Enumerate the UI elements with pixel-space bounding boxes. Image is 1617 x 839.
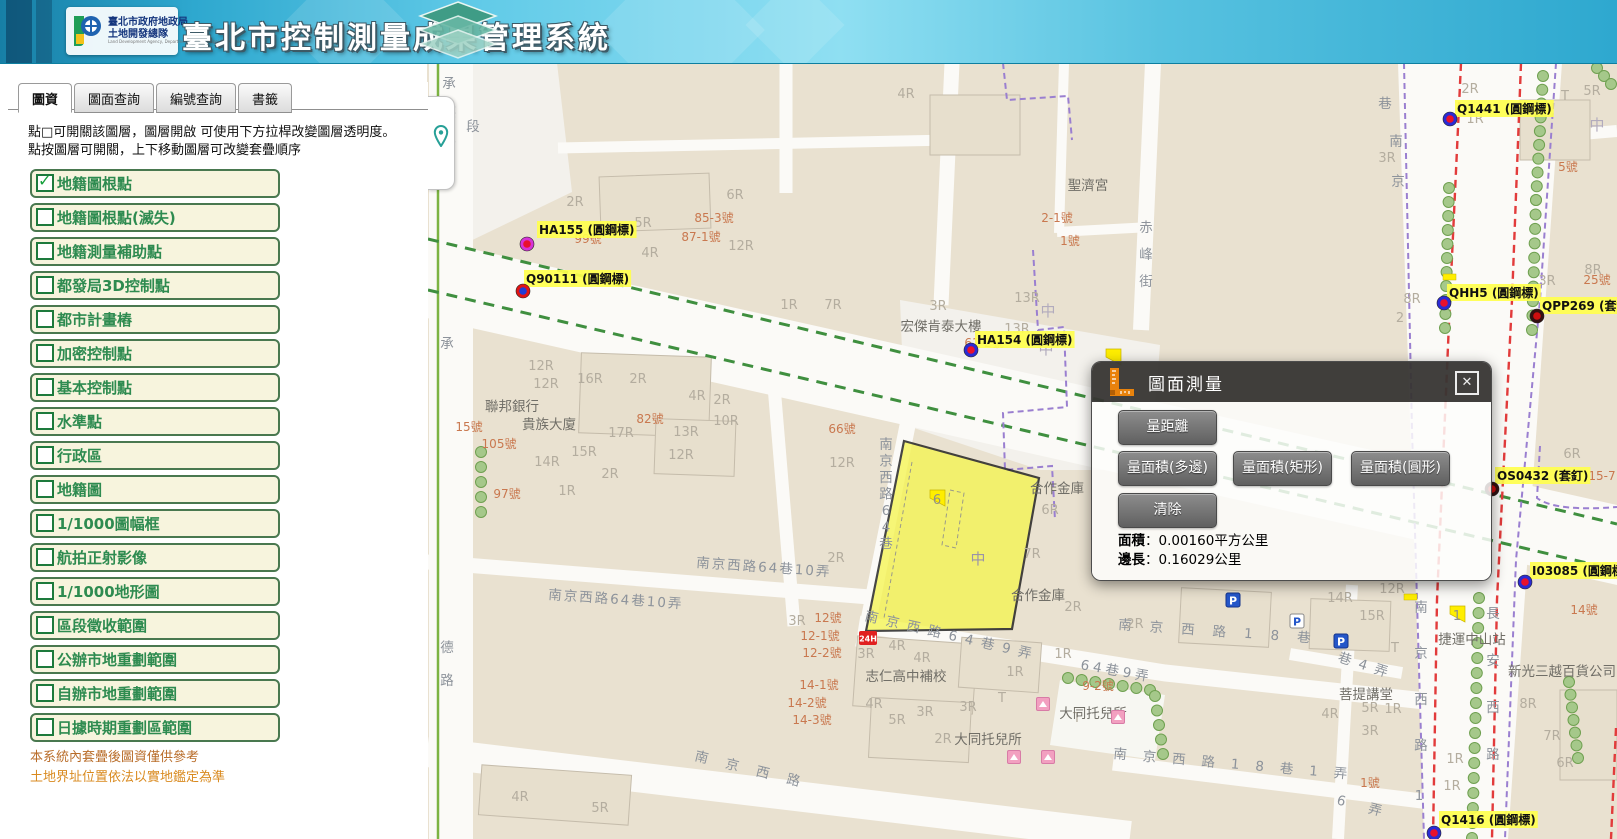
layer-checkbox[interactable] bbox=[36, 446, 54, 464]
tree-icon bbox=[1471, 683, 1482, 694]
layer-checkbox[interactable] bbox=[36, 480, 54, 498]
tree-icon bbox=[1474, 593, 1485, 604]
layer-checkbox[interactable] bbox=[36, 208, 54, 226]
location-pin-icon bbox=[433, 125, 449, 147]
layer-item-6[interactable]: 基本控制點 bbox=[30, 373, 280, 402]
tree-icon bbox=[476, 462, 487, 473]
building-label: T bbox=[1390, 641, 1399, 656]
sidebar-tabbar: 圖資圖面查詢編號查詢書籤 bbox=[8, 82, 428, 110]
layer-label: 都市計畫樁 bbox=[57, 309, 132, 330]
street-label: 承 bbox=[440, 336, 454, 352]
survey-point-dot bbox=[1533, 312, 1541, 320]
building-label: 2R bbox=[827, 551, 844, 566]
survey-point-label: HA155 (圓鋼標) bbox=[539, 222, 635, 237]
map-street bbox=[1059, 63, 1064, 233]
building-label: 4R bbox=[688, 389, 705, 404]
sidebar-notes: 本系統內套疊後圖資僅供參考 土地界址位置依法以實地鑑定為準 bbox=[30, 748, 428, 788]
building-label: 4R bbox=[511, 790, 528, 805]
layer-checkbox[interactable] bbox=[36, 412, 54, 430]
tree-icon bbox=[1154, 720, 1165, 731]
layer-label: 基本控制點 bbox=[57, 377, 132, 398]
layer-label: 行政區 bbox=[57, 445, 102, 466]
layer-checkbox[interactable] bbox=[36, 310, 54, 328]
street-label: 路 bbox=[1414, 738, 1428, 754]
tree-icon bbox=[1568, 715, 1579, 726]
building-label: 6R bbox=[1556, 756, 1573, 771]
tree-icon bbox=[1531, 195, 1542, 206]
survey-point-dot bbox=[967, 346, 975, 354]
building-label: 12R bbox=[533, 377, 559, 392]
place-label: 貴族大廈 bbox=[522, 416, 576, 433]
layer-checkbox[interactable] bbox=[36, 276, 54, 294]
house-number-label: 25號 bbox=[1583, 273, 1610, 287]
survey-point-label: Q90111 (圓鋼標) bbox=[526, 271, 629, 286]
tree-icon bbox=[1570, 727, 1581, 738]
tree-icon bbox=[1444, 183, 1455, 194]
house-number-label: 1號 bbox=[1360, 776, 1380, 790]
ruler-icon bbox=[1108, 368, 1134, 396]
building-label: 15R bbox=[1359, 609, 1385, 624]
header-decor-building bbox=[6, 0, 32, 63]
building-label: 6R bbox=[726, 188, 743, 203]
note-line: 土地界址位置依法以實地鑑定為準 bbox=[30, 768, 428, 788]
layer-item-0[interactable]: ✓地籍圖根點 bbox=[30, 169, 280, 198]
tab-1[interactable]: 圖面查詢 bbox=[74, 83, 154, 113]
building-label: 4R bbox=[1321, 707, 1338, 722]
street-label: 6 bbox=[882, 503, 891, 519]
tree-icon bbox=[1571, 740, 1582, 751]
street-label: 南 bbox=[1389, 134, 1403, 150]
area-circle-button[interactable]: 量面積(圓形) bbox=[1351, 451, 1450, 486]
tab-2[interactable]: 編號查詢 bbox=[156, 83, 236, 113]
parking-icon-letter: P bbox=[1293, 616, 1301, 629]
building-label: 6R bbox=[1563, 447, 1580, 462]
survey-point-dot bbox=[519, 287, 527, 295]
place-label: 合作金庫 bbox=[1030, 481, 1084, 497]
layer-checkbox[interactable] bbox=[36, 514, 54, 532]
place-label: 菩提講堂 bbox=[1339, 687, 1393, 703]
tree-icon bbox=[1470, 698, 1481, 709]
place-label: 捷運中山站 bbox=[1438, 632, 1506, 648]
building-label: 13R bbox=[673, 425, 699, 440]
building-label: 8R bbox=[1403, 292, 1420, 307]
street-label: 中 bbox=[970, 550, 985, 568]
survey-point-dot bbox=[1446, 115, 1454, 123]
house-number-label: 5號 bbox=[1558, 160, 1578, 174]
house-number-label: 1號 bbox=[1060, 234, 1080, 248]
tree-icon bbox=[1443, 197, 1454, 208]
measure-result-line: 面積：0.00160平方公里 bbox=[1118, 532, 1268, 551]
building-label: 2R bbox=[1064, 600, 1081, 615]
tree-icon bbox=[1470, 728, 1481, 739]
layer-label: 航拍正射影像 bbox=[57, 547, 147, 568]
map-flag-bar bbox=[1443, 274, 1456, 280]
measure-dialog-body: 面積：0.00160平方公里邊長：0.16029公里 量距離量面積(多邊)量面積… bbox=[1092, 402, 1491, 580]
tree-icon bbox=[1567, 702, 1578, 713]
building-label: 3R bbox=[857, 647, 874, 662]
header-decor-building bbox=[36, 0, 52, 63]
building-label: 7R bbox=[1543, 729, 1560, 744]
tab-0[interactable]: 圖資 bbox=[18, 83, 72, 113]
layer-checkbox[interactable] bbox=[36, 650, 54, 668]
building-label: 14R bbox=[534, 455, 560, 470]
building-label: 1R bbox=[1384, 702, 1401, 717]
building-label: 1R bbox=[1054, 647, 1071, 662]
street-label: 西 bbox=[1486, 700, 1500, 716]
building-label: 6R bbox=[1041, 503, 1058, 518]
street-label: 中 bbox=[1040, 302, 1055, 320]
clear-button[interactable]: 清除 bbox=[1118, 493, 1217, 528]
tree-icon bbox=[1442, 225, 1453, 236]
building-label: 3R bbox=[788, 614, 805, 629]
house-number-label: 15號 bbox=[455, 420, 482, 434]
tree-icon bbox=[1532, 167, 1543, 178]
tree-icon bbox=[1467, 833, 1478, 839]
building-label: 1R bbox=[1443, 779, 1460, 794]
building-label: 3R bbox=[1378, 151, 1395, 166]
building-label: 1R bbox=[1006, 665, 1023, 680]
tree-icon bbox=[476, 507, 487, 518]
tree-icon bbox=[1530, 209, 1541, 220]
street-label: 德 bbox=[440, 640, 454, 656]
street-label: 路 bbox=[440, 673, 454, 689]
building-label: 12R bbox=[1379, 582, 1405, 597]
tree-icon bbox=[1152, 705, 1163, 716]
building-label: 1R bbox=[558, 484, 575, 499]
layer-label: 地籍圖 bbox=[57, 479, 102, 500]
layer-item-10[interactable]: 1/1000圖幅框 bbox=[30, 509, 280, 538]
street-label: 路 bbox=[1486, 747, 1500, 763]
parking-icon[interactable]: P bbox=[1226, 593, 1240, 608]
building-label: 3R bbox=[916, 705, 933, 720]
building-label: 3R bbox=[959, 700, 976, 715]
house-number-label: 97號 bbox=[493, 487, 520, 501]
house-number-label: 66號 bbox=[828, 422, 855, 436]
street-label: 峰 bbox=[1139, 247, 1153, 263]
street-label: 長 bbox=[1486, 606, 1500, 622]
page-title: 臺北市控制測量成果管理系統 bbox=[182, 13, 611, 57]
building-label: 4R bbox=[888, 639, 905, 654]
building-label: T bbox=[997, 691, 1006, 706]
tree-icon bbox=[1534, 139, 1545, 150]
tree-icon bbox=[476, 492, 487, 503]
tree-icon bbox=[1131, 683, 1142, 694]
sidebar-panel: 圖資圖面查詢編號查詢書籤 點□可開關該圖層，圖層開啟 可使用下方拉桿改變圖層透明… bbox=[8, 82, 428, 839]
survey-point-label: OS0432 (套釘) bbox=[1497, 468, 1588, 483]
street-label: 路 bbox=[879, 487, 893, 503]
tree-icon bbox=[1442, 253, 1453, 264]
layer-item-4[interactable]: 都市計畫樁 bbox=[30, 305, 280, 334]
map-flag-number: 6 bbox=[933, 493, 941, 508]
tree-icon bbox=[1565, 689, 1576, 700]
survey-point-label: QHH5 (圓鋼標) bbox=[1449, 285, 1539, 300]
place-label: 合作金庫 bbox=[1011, 588, 1065, 604]
tree-icon bbox=[1606, 79, 1617, 90]
open-24h-badge: 24H bbox=[859, 631, 877, 645]
street-label: 赤 bbox=[1139, 220, 1153, 236]
building-label: 2R bbox=[1126, 617, 1143, 632]
place-label: 志仁高中補校 bbox=[866, 668, 947, 685]
layer-item-12[interactable]: 1/1000地形圖 bbox=[30, 577, 280, 606]
layer-label: 都發局3D控制點 bbox=[57, 275, 170, 296]
layer-checkbox[interactable] bbox=[36, 378, 54, 396]
street-label: 南 bbox=[879, 437, 893, 453]
note-line: 本系統內套疊後圖資僅供參考 bbox=[30, 748, 428, 768]
parking-icon[interactable]: P bbox=[1334, 634, 1348, 649]
layer-item-3[interactable]: 都發局3D控制點 bbox=[30, 271, 280, 300]
layer-checkbox[interactable]: ✓ bbox=[36, 174, 54, 192]
check-icon: ✓ bbox=[38, 171, 51, 190]
layer-label: 地籍測量補助點 bbox=[57, 241, 162, 262]
measure-results: 面積：0.00160平方公里邊長：0.16029公里 bbox=[1118, 532, 1268, 570]
sidebar-collapse-handle[interactable] bbox=[428, 96, 455, 190]
tree-icon bbox=[1538, 71, 1549, 82]
house-number-label: 87-1號 bbox=[681, 230, 720, 244]
survey-point-label: Q1416 (圓鋼標) bbox=[1441, 812, 1536, 827]
tree-icon bbox=[1468, 773, 1479, 784]
house-number-label: 14-1號 bbox=[799, 678, 838, 692]
map-flag-bar bbox=[1404, 594, 1417, 600]
building-label: 7R bbox=[1023, 547, 1040, 562]
measure-dialog: 圖面測量 ✕ 面積：0.00160平方公里邊長：0.16029公里 量距離量面積… bbox=[1091, 361, 1492, 581]
distance-button[interactable]: 量距離 bbox=[1118, 410, 1217, 445]
building-label: T bbox=[1560, 89, 1569, 104]
tree-icon bbox=[1469, 743, 1480, 754]
street-label: 巷 bbox=[1378, 96, 1392, 112]
layer-checkbox[interactable] bbox=[36, 684, 54, 702]
building-label: 5R bbox=[888, 713, 905, 728]
layer-checkbox[interactable] bbox=[36, 718, 54, 736]
tree-icon bbox=[476, 477, 487, 488]
building-label: 5R bbox=[591, 801, 608, 816]
building-label: 5R bbox=[634, 216, 651, 231]
building-label: 5R bbox=[1361, 701, 1378, 716]
nursery-icon bbox=[1037, 698, 1050, 711]
tree-icon bbox=[1530, 223, 1541, 234]
layer-checkbox[interactable] bbox=[36, 344, 54, 362]
layer-label: 公辦市地重劃範圍 bbox=[57, 649, 177, 670]
building-label: 2R bbox=[713, 393, 730, 408]
layer-item-14[interactable]: 公辦市地重劃範圍 bbox=[30, 645, 280, 674]
building-label: 1R bbox=[780, 298, 797, 313]
place-label: 聖濟宮 bbox=[1068, 178, 1109, 194]
tree-icon bbox=[1156, 734, 1167, 745]
tree-icon bbox=[1470, 713, 1481, 724]
building-label: 15R bbox=[571, 445, 597, 460]
layer-instructions: 點□可開關該圖層，圖層開啟 可使用下方拉桿改變圖層透明度。 點按圖層可開關，上下… bbox=[28, 124, 410, 161]
layer-label: 自辦市地重劃範圍 bbox=[57, 683, 177, 704]
street-label: 街 bbox=[1139, 274, 1153, 290]
tree-icon bbox=[1469, 758, 1480, 769]
open-24h-badge-text: 24H bbox=[859, 635, 877, 644]
agency-logo-icon bbox=[70, 14, 104, 48]
building-label: 14R bbox=[1327, 591, 1353, 606]
place-label: 大同托兒所 bbox=[954, 732, 1022, 748]
tree-icon bbox=[1442, 239, 1453, 250]
map-layers-graphic bbox=[418, 0, 498, 63]
layer-item-13[interactable]: 區段徵收範圍 bbox=[30, 611, 280, 640]
house-number-label: 14-2號 bbox=[787, 696, 826, 710]
tree-icon bbox=[1531, 181, 1542, 192]
tree-icon bbox=[1537, 84, 1548, 95]
layer-checkbox[interactable] bbox=[36, 242, 54, 260]
close-icon[interactable]: ✕ bbox=[1455, 371, 1479, 395]
building-label: 16R bbox=[577, 372, 603, 387]
parking-icon[interactable]: P bbox=[1290, 614, 1304, 629]
tree-icon bbox=[1468, 788, 1479, 799]
building-label: 2R bbox=[566, 195, 583, 210]
house-number-label: 14-3號 bbox=[792, 713, 831, 727]
tree-icon bbox=[1529, 252, 1540, 263]
building-label: 12R bbox=[728, 239, 754, 254]
tree-icon bbox=[1533, 153, 1544, 164]
layer-item-9[interactable]: 地籍圖 bbox=[30, 475, 280, 504]
layer-item-2[interactable]: 地籍測量補助點 bbox=[30, 237, 280, 266]
header-decor-diamond bbox=[746, 0, 845, 64]
street-label: 京 bbox=[1414, 646, 1428, 662]
house-number-label: 82號 bbox=[636, 412, 663, 426]
map-building bbox=[930, 95, 1020, 155]
street-label: 南 bbox=[1414, 600, 1428, 616]
tree-icon bbox=[1471, 668, 1482, 679]
nursery-icon bbox=[1112, 711, 1125, 724]
street-label: 承 bbox=[442, 76, 456, 92]
tree-icon bbox=[1529, 238, 1540, 249]
street-label: 4 bbox=[882, 520, 891, 536]
layer-label: 日據時期重劃區範圍 bbox=[57, 717, 192, 738]
survey-point-label: QPP269 (套釘) bbox=[1542, 298, 1617, 313]
street-label: 安 bbox=[1486, 653, 1500, 669]
map-street bbox=[1057, 227, 1152, 232]
building-label: 2R bbox=[601, 467, 618, 482]
street-label: 中 bbox=[1589, 116, 1604, 134]
tab-3[interactable]: 書籤 bbox=[238, 83, 292, 113]
tree-icon bbox=[1472, 653, 1483, 664]
house-number-label: 9-2號 bbox=[1082, 679, 1114, 693]
building-label: 13R bbox=[1014, 291, 1040, 306]
layer-label: 地籍圖根點(滅失) bbox=[57, 207, 176, 228]
app-header: 臺北市政府地政局 土地開發總隊 Land Development Agency,… bbox=[0, 0, 1617, 64]
building-label: 3R bbox=[1361, 724, 1378, 739]
building-label: 2R bbox=[1461, 82, 1478, 97]
street-label: 西 bbox=[1414, 692, 1428, 708]
measure-dialog-title: 圖面測量 bbox=[1148, 370, 1224, 395]
street-label: 1 bbox=[1415, 788, 1424, 804]
layer-item-1[interactable]: 地籍圖根點(滅失) bbox=[30, 203, 280, 232]
layer-label: 區段徵收範圍 bbox=[57, 615, 147, 636]
house-number-label: 15-7 bbox=[1588, 469, 1615, 483]
tree-icon bbox=[1117, 681, 1128, 692]
building-label: 3R bbox=[929, 299, 946, 314]
tree-icon bbox=[1150, 691, 1161, 702]
layer-list: ✓地籍圖根點地籍圖根點(滅失)地籍測量補助點都發局3D控制點都市計畫樁加密控制點… bbox=[30, 169, 428, 742]
agency-logo: 臺北市政府地政局 土地開發總隊 Land Development Agency,… bbox=[66, 7, 178, 55]
nursery-icon bbox=[1042, 751, 1055, 764]
nursery-icon bbox=[1008, 751, 1021, 764]
tree-icon bbox=[1534, 126, 1545, 137]
building-label: 8R bbox=[1519, 697, 1536, 712]
house-number-label: 12號 bbox=[814, 611, 841, 625]
house-number-label: 85-3號 bbox=[694, 211, 733, 225]
layer-item-5[interactable]: 加密控制點 bbox=[30, 339, 280, 368]
survey-point-label: Q1441 (圓鋼標) bbox=[1457, 101, 1552, 116]
layer-item-16[interactable]: 日據時期重劃區範圍 bbox=[30, 713, 280, 742]
building-label: 4R bbox=[865, 697, 882, 712]
building-label: 4R bbox=[897, 87, 914, 102]
tree-icon bbox=[1473, 608, 1484, 619]
building-label: 1R bbox=[1446, 752, 1463, 767]
measure-dialog-titlebar[interactable]: 圖面測量 ✕ bbox=[1092, 362, 1491, 402]
layer-checkbox[interactable] bbox=[36, 548, 54, 566]
street-label: 巷 bbox=[879, 536, 893, 552]
street-label: 段 bbox=[466, 119, 480, 135]
layer-checkbox[interactable] bbox=[36, 616, 54, 634]
building-label: 5R bbox=[1583, 84, 1600, 99]
layer-item-11[interactable]: 航拍正射影像 bbox=[30, 543, 280, 572]
layer-label: 水準點 bbox=[57, 411, 102, 432]
tree-icon bbox=[1443, 211, 1454, 222]
survey-point-label: I03085 (圓鋼標) bbox=[1532, 563, 1617, 578]
tree-icon bbox=[1063, 673, 1074, 684]
place-label: 聯邦銀行 bbox=[485, 399, 539, 415]
layer-label: 1/1000圖幅框 bbox=[57, 513, 160, 534]
layer-item-8[interactable]: 行政區 bbox=[30, 441, 280, 470]
house-number-label: 12-1號 bbox=[800, 629, 839, 643]
area-rect-button[interactable]: 量面積(矩形) bbox=[1233, 451, 1332, 486]
place-label: 宏傑肯泰大樓 bbox=[901, 319, 982, 335]
layer-item-15[interactable]: 自辦市地重劃範圍 bbox=[30, 679, 280, 708]
street-label: 京 bbox=[879, 454, 893, 470]
survey-point-dot bbox=[523, 240, 531, 248]
house-number-label: 2-1號 bbox=[1041, 211, 1073, 225]
layer-label: 地籍圖根點 bbox=[57, 173, 132, 194]
building-label: 2 bbox=[1396, 311, 1404, 326]
layer-label: 1/1000地形圖 bbox=[57, 581, 160, 602]
layer-item-7[interactable]: 水準點 bbox=[30, 407, 280, 436]
area-polygon-button[interactable]: 量面積(多邊) bbox=[1118, 451, 1217, 486]
app-window: 承德路段承德路南京西路64巷南京西路64巷10弄南京西路64巷10弄南京西路64… bbox=[0, 0, 1617, 839]
house-number-label: 14號 bbox=[1570, 603, 1597, 617]
survey-point-dot bbox=[1440, 299, 1448, 307]
header-decor-diamond bbox=[595, 0, 765, 64]
house-number-label: 105號 bbox=[482, 437, 517, 451]
building-label: 10R bbox=[713, 414, 739, 429]
street-label: 京 bbox=[1391, 174, 1405, 190]
building-label: 3R bbox=[1538, 274, 1555, 289]
building-label: 12R bbox=[829, 456, 855, 471]
tree-icon bbox=[1573, 753, 1584, 764]
survey-point-dot bbox=[1430, 829, 1438, 837]
building-label: 2R bbox=[629, 372, 646, 387]
tree-icon bbox=[1527, 325, 1538, 336]
tree-icon bbox=[1440, 323, 1451, 334]
building-label: 7R bbox=[824, 298, 841, 313]
building-label: 12R bbox=[668, 448, 694, 463]
house-number-label: 12-2號 bbox=[802, 646, 841, 660]
map-building bbox=[478, 765, 631, 825]
building-label: 4R bbox=[641, 246, 658, 261]
layer-checkbox[interactable] bbox=[36, 582, 54, 600]
map-flag-number: 1 bbox=[1453, 609, 1461, 624]
parking-icon-letter: P bbox=[1229, 595, 1237, 608]
measure-result-line: 邊長：0.16029公里 bbox=[1118, 551, 1268, 570]
street-label: 西 bbox=[879, 470, 893, 486]
survey-point-dot bbox=[1521, 578, 1529, 586]
place-label: 新光三越百貨公司 bbox=[1508, 663, 1616, 680]
building-label: 4R bbox=[913, 651, 930, 666]
building-label: 17R bbox=[608, 426, 634, 441]
parking-icon-letter: P bbox=[1337, 636, 1345, 649]
